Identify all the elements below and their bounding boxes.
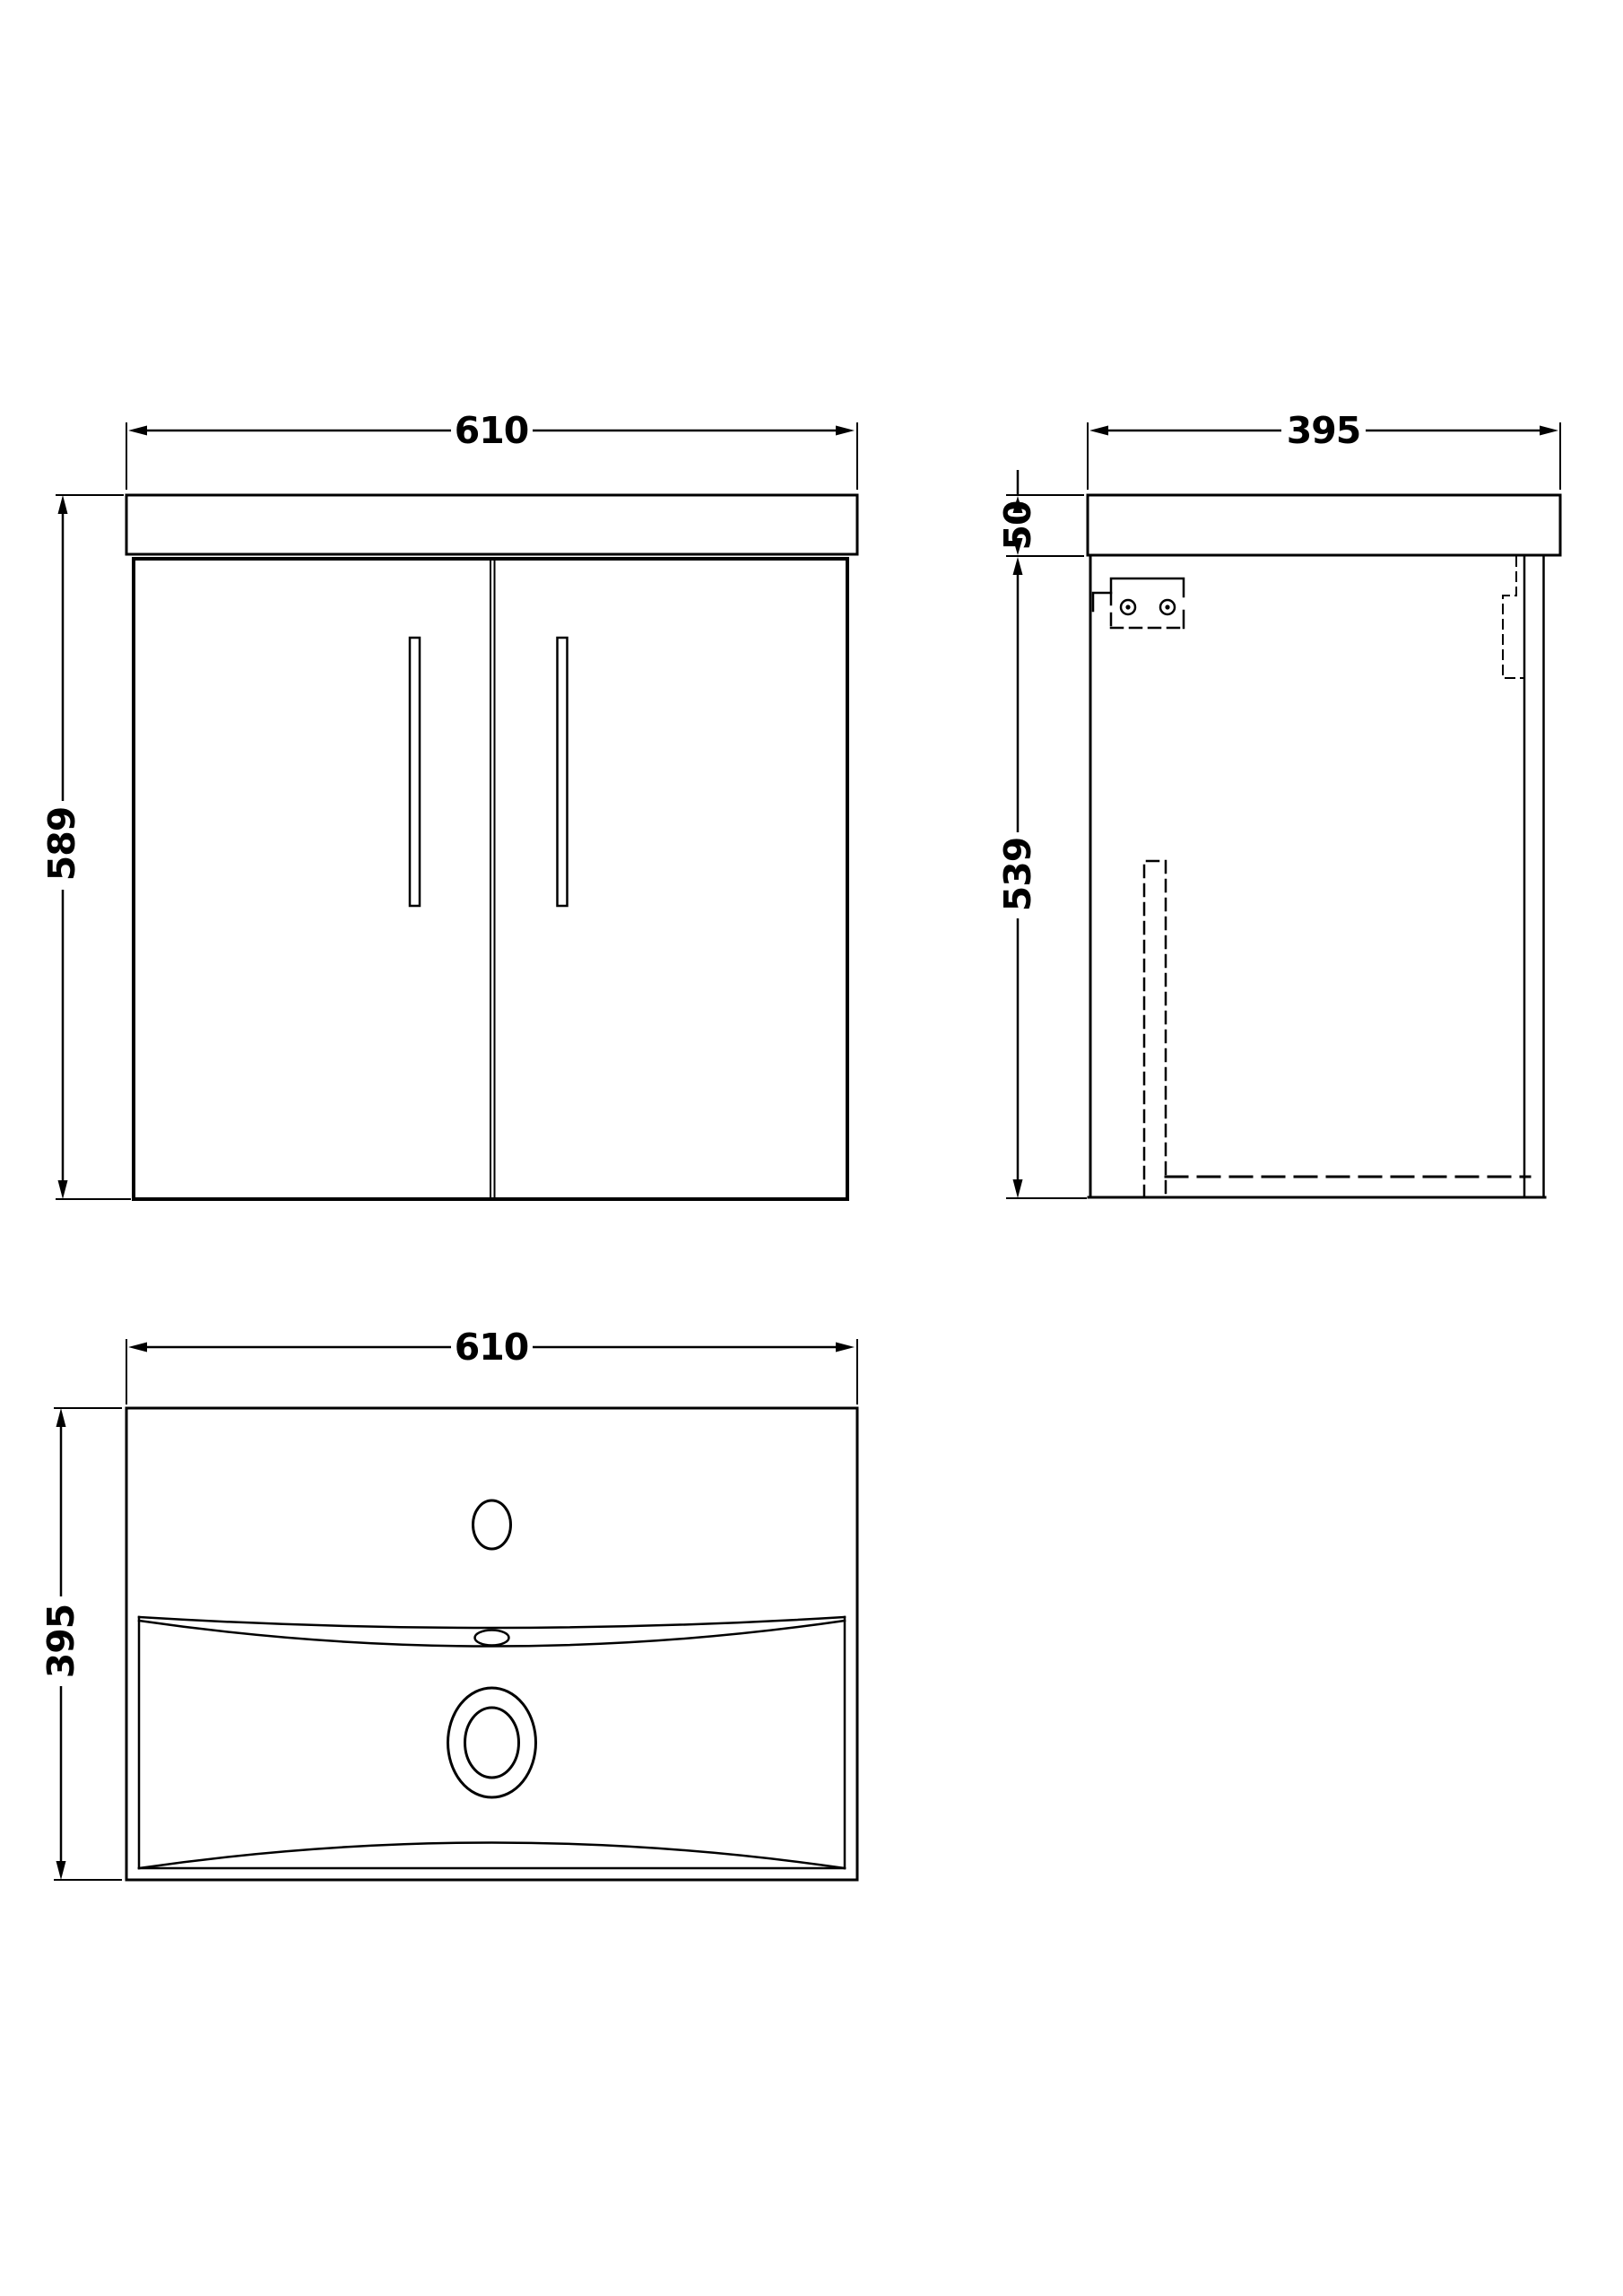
hinge-hidden-outline <box>1503 557 1524 678</box>
front-width-dimension: 610 <box>126 409 857 490</box>
arrowhead-right <box>836 426 855 436</box>
arrowhead-bottom <box>1013 1179 1023 1198</box>
side-depth-label: 395 <box>1287 409 1361 452</box>
worktop-front <box>126 495 857 554</box>
arrowhead-left <box>128 426 147 436</box>
bowl-front-slope-curve <box>139 1843 845 1869</box>
arrowhead-top <box>1013 557 1023 575</box>
vanity-unit-drawing: 610 589 395 <box>0 0 1623 2296</box>
left-door-handle <box>410 638 420 906</box>
drain-outer-ring <box>448 1688 536 1797</box>
bracket-hidden-edge <box>1111 613 1184 628</box>
arrowhead-top <box>58 495 68 514</box>
arrowhead-left <box>1089 426 1108 436</box>
worktop-side <box>1088 495 1560 555</box>
arrowhead-left <box>128 1343 147 1352</box>
basin-depth-dimension: 395 <box>39 1408 122 1880</box>
wall-bracket <box>1093 578 1184 628</box>
front-height-dimension: 589 <box>40 495 131 1199</box>
tap-hole <box>473 1500 511 1549</box>
side-view: 395 50 539 <box>996 409 1560 1198</box>
technical-drawing-page: 610 589 395 <box>0 0 1623 2296</box>
cabinet-height-label: 539 <box>996 838 1039 912</box>
basin-bowl-outline <box>139 1617 845 1868</box>
bracket-body <box>1111 578 1184 604</box>
arrowhead-bottom <box>58 1180 68 1199</box>
bracket-hook <box>1093 593 1111 611</box>
worktop-thickness-dimension: 50 <box>996 470 1084 556</box>
front-height-label: 589 <box>40 807 83 882</box>
worktop-thickness-label: 50 <box>996 500 1039 550</box>
arrowhead-top <box>56 1408 66 1427</box>
front-width-label: 610 <box>455 409 529 452</box>
door-hidden-outline <box>1144 861 1166 1197</box>
basin-width-dimension: 610 <box>126 1326 857 1405</box>
side-depth-dimension: 395 <box>1088 409 1560 490</box>
bowl-back-lip-curve <box>139 1617 845 1628</box>
waste-drain <box>448 1688 536 1797</box>
overflow-slot <box>475 1631 509 1646</box>
arrowhead-right <box>1540 426 1558 436</box>
drain-inner-ring <box>465 1708 519 1778</box>
basin-width-label: 610 <box>455 1326 529 1369</box>
arrowhead-bottom <box>56 1861 66 1880</box>
arrowhead-right <box>836 1343 855 1352</box>
cabinet-height-dimension: 539 <box>996 557 1087 1198</box>
basin-depth-label: 395 <box>39 1605 82 1679</box>
bracket-screw-center <box>1125 604 1130 609</box>
front-view: 610 589 <box>40 409 857 1199</box>
right-door-handle <box>558 638 568 906</box>
bracket-screw-center <box>1165 604 1169 609</box>
basin-plan-view: 610 395 <box>39 1326 857 1880</box>
